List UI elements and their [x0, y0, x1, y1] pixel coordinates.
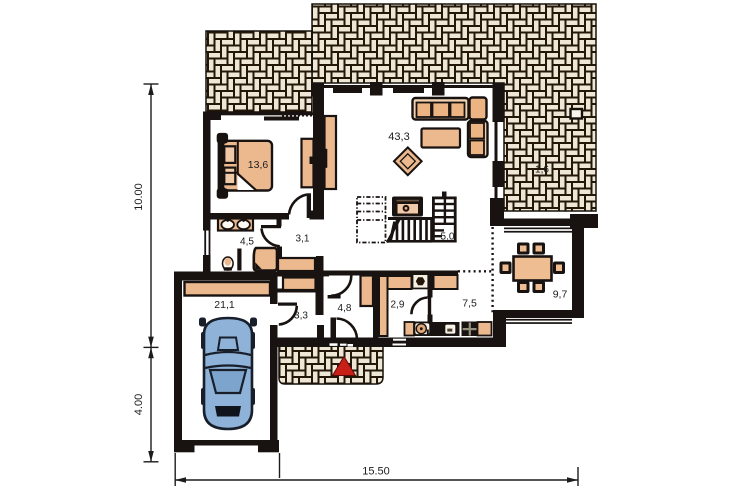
svg-text:13,6: 13,6 — [248, 159, 269, 171]
svg-text:9,7: 9,7 — [553, 289, 568, 301]
svg-text:15.50: 15.50 — [362, 466, 390, 478]
svg-text:4,8: 4,8 — [338, 303, 352, 314]
svg-text:3,1: 3,1 — [296, 234, 310, 245]
svg-text:4,5: 4,5 — [240, 237, 254, 248]
svg-text:1,6: 1,6 — [535, 165, 549, 176]
svg-text:43,3: 43,3 — [388, 131, 409, 143]
svg-text:3,3: 3,3 — [294, 311, 308, 322]
svg-text:7,5: 7,5 — [462, 298, 477, 310]
svg-text:10.00: 10.00 — [133, 183, 145, 211]
svg-text:21,1: 21,1 — [214, 299, 235, 311]
svg-text:5.0: 5.0 — [441, 232, 455, 243]
svg-text:2,9: 2,9 — [391, 300, 405, 311]
svg-text:4.00: 4.00 — [133, 394, 145, 415]
